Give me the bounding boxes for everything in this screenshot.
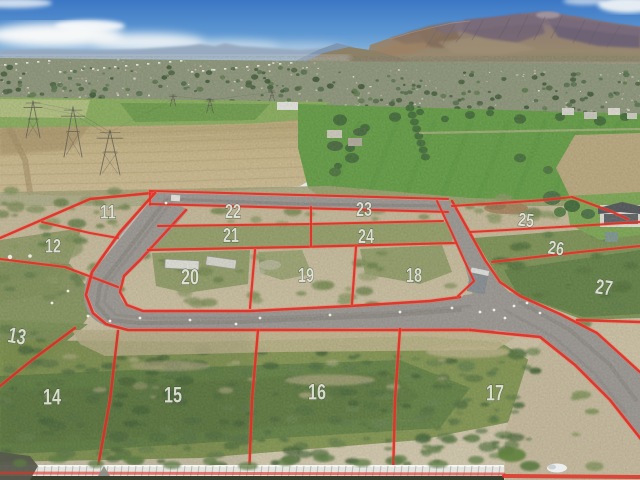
svg-text:26: 26 [547, 237, 566, 260]
svg-text:25: 25 [517, 210, 535, 233]
svg-text:12: 12 [45, 237, 61, 258]
svg-text:15: 15 [164, 383, 182, 408]
svg-text:18: 18 [406, 265, 422, 287]
svg-text:14: 14 [43, 385, 62, 410]
svg-text:16: 16 [308, 380, 326, 405]
svg-text:11: 11 [100, 203, 116, 224]
svg-text:23: 23 [356, 199, 372, 221]
svg-text:24: 24 [358, 226, 375, 248]
svg-text:20: 20 [181, 265, 199, 290]
svg-text:19: 19 [298, 265, 314, 287]
svg-text:22: 22 [225, 201, 241, 223]
svg-text:21: 21 [223, 225, 239, 247]
svg-text:27: 27 [594, 275, 614, 300]
svg-text:17: 17 [486, 381, 504, 406]
